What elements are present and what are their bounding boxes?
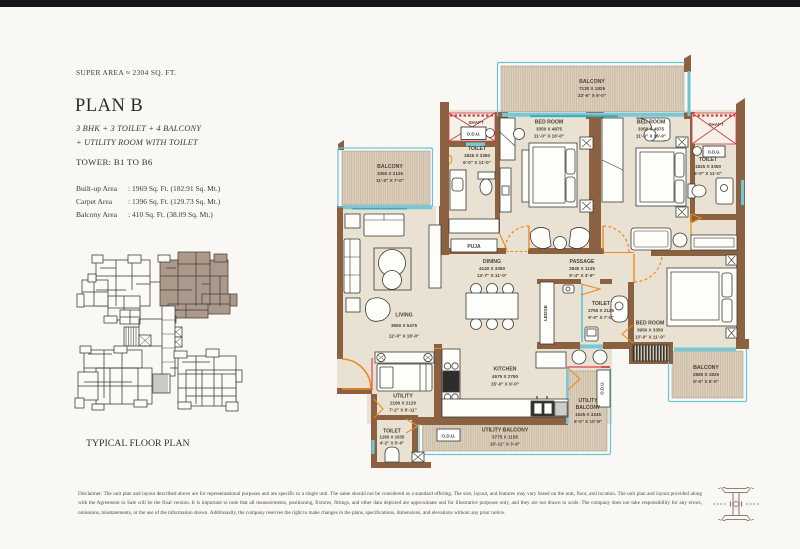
svg-text:1825 X 3350: 1825 X 3350	[695, 164, 722, 169]
svg-text:BED ROOM: BED ROOM	[535, 120, 564, 126]
svg-text:13'-0" X 11'-0": 13'-0" X 11'-0"	[635, 335, 665, 340]
svg-text:TOILET: TOILET	[592, 301, 611, 307]
svg-text:11'-0" X 16'-0": 11'-0" X 16'-0"	[636, 134, 666, 139]
svg-text:2840 X 1135: 2840 X 1135	[569, 266, 595, 271]
svg-text:9'-0" X 7'-0": 9'-0" X 7'-0"	[588, 315, 613, 320]
svg-text:O.D.U.: O.D.U.	[708, 150, 721, 155]
svg-text:2880 X 1825: 2880 X 1825	[693, 372, 720, 377]
svg-text:3350 X 2125: 3350 X 2125	[377, 171, 404, 176]
svg-text:3350 X 4875: 3350 X 4875	[536, 127, 563, 132]
svg-text:5'-0" X 10'-8": 5'-0" X 10'-8"	[574, 419, 602, 424]
svg-text:BED ROOM: BED ROOM	[637, 120, 666, 126]
svg-text:1825 X 3350: 1825 X 3350	[464, 153, 491, 158]
svg-text:3660 X 5475: 3660 X 5475	[391, 323, 418, 328]
svg-text:BALCONY: BALCONY	[377, 164, 403, 170]
svg-text:O.D.U.: O.D.U.	[441, 434, 455, 439]
svg-text:KITCHEN: KITCHEN	[493, 367, 516, 373]
svg-text:O.D.U.: O.D.U.	[467, 132, 481, 137]
svg-text:15'-0" X 9'-0": 15'-0" X 9'-0"	[491, 382, 519, 387]
svg-text:1525 X 3245: 1525 X 3245	[575, 412, 602, 417]
svg-text:4'-2" X 5'-0": 4'-2" X 5'-0"	[380, 441, 404, 446]
svg-text:BED ROOM: BED ROOM	[636, 321, 665, 327]
svg-text:23'-6" X 6'-0": 23'-6" X 6'-0"	[578, 93, 606, 98]
svg-text:O.D.U.: O.D.U.	[600, 381, 605, 394]
svg-text:1260 X 1635: 1260 X 1635	[380, 435, 405, 440]
svg-text:4575 X 2750: 4575 X 2750	[492, 374, 519, 379]
svg-text:TOILET: TOILET	[699, 157, 718, 163]
svg-text:4140 X 3350: 4140 X 3350	[479, 266, 506, 271]
svg-text:13'-7" X 11'-0": 13'-7" X 11'-0"	[477, 273, 507, 278]
svg-text:2750 X 2125: 2750 X 2125	[588, 308, 615, 313]
svg-text:TOILET: TOILET	[468, 146, 487, 152]
svg-text:6'-0" X 11'-0": 6'-0" X 11'-0"	[463, 160, 491, 165]
svg-text:16'-11" X 3'-9": 16'-11" X 3'-9"	[490, 442, 520, 447]
svg-text:PUJA: PUJA	[467, 244, 481, 250]
svg-text:7'-2" X 6'-11": 7'-2" X 6'-11"	[389, 408, 417, 413]
svg-text:2180 X 2120: 2180 X 2120	[390, 401, 417, 406]
svg-text:UTILITY BALCONY: UTILITY BALCONY	[482, 428, 529, 434]
svg-text:LEDGE: LEDGE	[543, 305, 548, 321]
svg-text:9'-5" X 6'-0": 9'-5" X 6'-0"	[693, 379, 718, 384]
svg-text:DINING: DINING	[483, 259, 501, 265]
svg-text:3350 X 4875: 3350 X 4875	[638, 127, 665, 132]
svg-text:SHAFT: SHAFT	[708, 122, 724, 127]
svg-text:BALCONY: BALCONY	[576, 405, 601, 411]
svg-text:11'-0" X 16'-0": 11'-0" X 16'-0"	[534, 134, 564, 139]
svg-text:11'-0" X 7'-0": 11'-0" X 7'-0"	[376, 178, 404, 183]
svg-text:SHAFT: SHAFT	[468, 120, 484, 125]
svg-text:9'-4" X 3'-9": 9'-4" X 3'-9"	[569, 273, 594, 278]
svg-text:BALCONY: BALCONY	[693, 365, 719, 371]
svg-text:6'-0" X 11'-0": 6'-0" X 11'-0"	[694, 171, 722, 176]
svg-text:UTILITY: UTILITY	[579, 398, 599, 404]
svg-text:7130 X 1825: 7130 X 1825	[579, 86, 606, 91]
svg-text:LIVING: LIVING	[395, 313, 412, 319]
svg-text:5775 X 1155: 5775 X 1155	[492, 435, 518, 440]
svg-text:12'-0" X 18'-0": 12'-0" X 18'-0"	[389, 334, 420, 339]
svg-text:PASSAGE: PASSAGE	[570, 259, 596, 265]
svg-text:3950 X 3350: 3950 X 3350	[637, 328, 664, 333]
svg-text:BALCONY: BALCONY	[579, 79, 605, 85]
svg-text:UTILITY: UTILITY	[393, 394, 413, 400]
